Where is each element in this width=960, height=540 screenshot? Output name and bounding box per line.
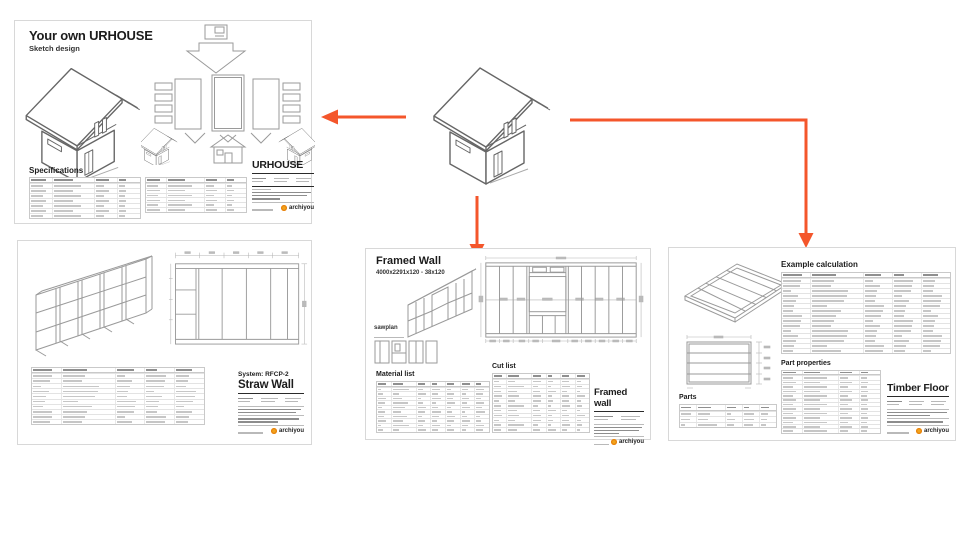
central-house-illustration: [425, 50, 551, 190]
plan-elevations-diagram: [141, 23, 315, 165]
archiyou-logo-text: archiyou: [924, 428, 949, 434]
titleblock-meta: [252, 176, 314, 184]
example-calculation-heading: Example calculation: [781, 260, 858, 269]
framed-wall-elevation-drawing: [478, 255, 644, 343]
specifications-heading: Specifications: [29, 166, 83, 175]
straw-wall-elevation-drawing: [168, 247, 308, 359]
framed-wall-isometric-drawing: [402, 261, 478, 341]
titleblock-title: URHOUSE: [252, 159, 314, 171]
arrow-left-icon: [321, 110, 406, 125]
titleblock-straw-wall: System: RFCP-2 Straw Wall archiyou: [238, 371, 304, 437]
material-list-table: [376, 381, 490, 433]
archiyou-logo-icon: [611, 439, 617, 445]
titleblock-timber-floor: Timber Floor archiyou: [887, 382, 949, 434]
spec-table-right: [145, 177, 247, 213]
cut-list-heading: Cut list: [492, 363, 516, 370]
archiyou-logo: archiyou: [611, 439, 644, 445]
straw-wall-parts-table: [31, 367, 205, 425]
parts-table: [679, 404, 777, 428]
timber-floor-isometric-drawing: [681, 254, 791, 329]
sawplan-drawing: [374, 339, 438, 365]
sheet-framed-wall: Framed Wall 4000x2291x120 - 38x120: [365, 248, 651, 440]
archiyou-logo: archiyou: [916, 428, 949, 434]
sawplan-label: sawplan: [374, 325, 398, 331]
sheet-subtitle: Sketch design: [29, 44, 80, 53]
part-properties-table: [781, 370, 881, 434]
part-properties-heading: Part properties: [781, 360, 831, 367]
sheet-timber-floor: Example calculation Parts Part propertie…: [668, 247, 956, 441]
titleblock-framed-wall: Framed wall archiyou: [594, 387, 644, 433]
archiyou-logo-icon: [916, 428, 922, 434]
straw-wall-isometric-drawing: [26, 247, 168, 367]
archiyou-logo-icon: [281, 205, 287, 211]
titleblock-urhouse: URHOUSE archiyou: [252, 159, 314, 217]
example-calculation-table: [781, 272, 951, 354]
archiyou-logo-text: archiyou: [279, 428, 304, 434]
cut-list-table: [492, 373, 590, 433]
diagram-canvas: Your own URHOUSE Sketch design: [0, 0, 960, 540]
sheet-title: Your own URHOUSE: [29, 28, 153, 43]
titleblock-meta: [238, 396, 304, 404]
archiyou-logo: archiyou: [271, 428, 304, 434]
parts-heading: Parts: [679, 394, 697, 401]
material-list-heading: Material list: [376, 371, 415, 378]
titleblock-title: Straw Wall: [238, 379, 304, 391]
system-label: System: RFCP-2: [238, 371, 304, 378]
titleblock-meta: [887, 399, 949, 407]
titleblock-title: Framed wall: [594, 387, 644, 409]
archiyou-logo-text: archiyou: [289, 205, 314, 211]
archiyou-logo-text: archiyou: [619, 439, 644, 445]
sheet-sketch-design: Your own URHOUSE Sketch design: [14, 20, 312, 224]
titleblock-meta: [594, 414, 644, 422]
titleblock-title: Timber Floor: [887, 382, 949, 394]
archiyou-logo-icon: [271, 428, 277, 434]
timber-floor-plan-drawing: [681, 334, 773, 392]
sheet-straw-wall: System: RFCP-2 Straw Wall archiyou: [17, 240, 312, 445]
arrow-right-icon: [570, 120, 814, 248]
archiyou-logo: archiyou: [281, 205, 314, 211]
spec-table-left: [29, 177, 141, 219]
